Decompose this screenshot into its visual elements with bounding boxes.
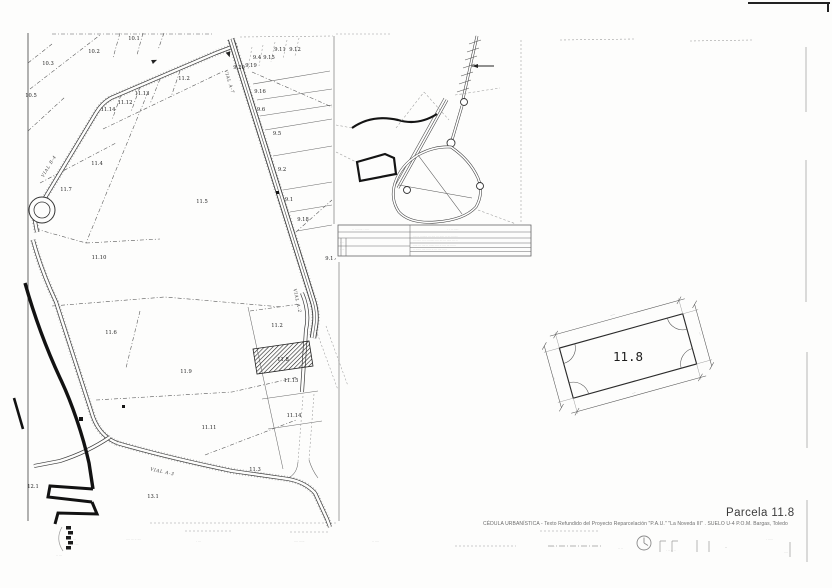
- top-right-border-corner: [748, 2, 830, 4]
- micro-text: ····: [698, 331, 703, 336]
- parcel-label: 11.14: [287, 413, 303, 419]
- road-label: VIAL A-2: [291, 288, 301, 313]
- parcel-label: 9.20: [233, 65, 245, 71]
- parcel-label: 11.10: [92, 255, 107, 261]
- parcel-label: 9.16: [254, 89, 266, 95]
- parcel-label: 11.2: [271, 323, 283, 329]
- parcel-label: 9.5: [273, 131, 281, 137]
- parcel-boundaries: [28, 33, 332, 469]
- sheet-border-marks: [540, 39, 807, 562]
- parcel-label: 9.18: [297, 217, 309, 223]
- parcel-label: 9.15: [263, 55, 275, 61]
- micro-text: ·· ···: [70, 537, 76, 541]
- sheet-title: Parcela 11.8: [726, 507, 795, 519]
- micro-text: ·····: [610, 312, 616, 317]
- parcel-label: 11.13: [135, 91, 150, 97]
- parcel-label: 9.1: [285, 197, 293, 203]
- parcel-label: 9.2: [278, 167, 286, 173]
- road-arrow: [151, 58, 158, 64]
- parcel-label: 9.6: [257, 107, 265, 113]
- parcel-label: 10.1: [128, 36, 140, 42]
- roundabout-outer: [29, 197, 55, 223]
- micro-text: ·····: [550, 544, 555, 548]
- parcel-label: 11.5: [196, 199, 208, 205]
- micro-text: ···· ······: [294, 539, 305, 543]
- scanned-sheet: 10.210.310.510.111.1411.1211.1311.211.41…: [0, 0, 832, 588]
- road-label: VIAL A-7: [222, 69, 234, 94]
- parcel-label: 11.3: [249, 467, 261, 473]
- micro-text: ·· ··: [618, 546, 623, 550]
- micro-text: ····: [631, 391, 636, 396]
- parcel-label: 11.6: [105, 330, 117, 336]
- parcel-label: 9.4: [253, 55, 262, 61]
- parcel-label: 11.12: [118, 100, 133, 106]
- map-frame: [28, 33, 339, 523]
- micro-text-layer: ·· ········ · ····· · ·· ········· ·· ··…: [56, 227, 788, 557]
- parcel-label: 11.7: [60, 187, 72, 193]
- road-label: VIAL B-4: [41, 155, 58, 179]
- micro-text: · · ·· ·····: [447, 227, 458, 231]
- micro-text: ····· ··· ···· ·· ······ ···· ·· ···· ··…: [413, 243, 456, 247]
- micro-text: ·· ······ ···· ····· ·· ··· ···· ·····: [413, 248, 447, 252]
- micro-text: · ·····: [766, 537, 773, 541]
- micro-text: ····: [552, 375, 557, 380]
- micro-text: ···· ··· ·· ····: [126, 537, 141, 541]
- micro-text: ·· ········ · ····: [352, 227, 369, 231]
- micro-text: ·· ···: [56, 553, 62, 557]
- parcel-label: 11.11: [202, 425, 217, 431]
- sheet-lineart: 10.210.310.510.111.1411.1211.1311.211.41…: [0, 0, 832, 588]
- micro-text: ··: [725, 546, 727, 550]
- micro-text: · ·· ·· · ···: [66, 542, 78, 546]
- left-parcel-map: 10.210.310.510.111.1411.1211.1311.211.41…: [14, 33, 348, 551]
- parcel-label: 11.4: [91, 161, 103, 167]
- parcel-label: 9.11: [274, 47, 286, 53]
- parcel-label: 13.1: [147, 494, 159, 500]
- parcel-label: 10.3: [42, 61, 54, 67]
- micro-text: ··· ····· ·· ·· ········ ···· ··· ··· ··…: [413, 239, 458, 243]
- road-label: VIAL A-3: [150, 468, 175, 478]
- inset-overview-map: [333, 29, 533, 258]
- micro-text: · ···: [340, 247, 345, 251]
- micro-text: ···· ·· ········ ··· ···· ··· ····· ·· ·…: [413, 234, 458, 238]
- micro-text: ····: [340, 240, 344, 244]
- parcel-label: 9.12: [289, 47, 301, 53]
- parcel-label: 11.15: [284, 378, 299, 384]
- sheet-subtitle: CÉDULA URBANÍSTICA - Texto Refundido del…: [483, 521, 803, 527]
- parcel-label: 12.1: [27, 484, 39, 490]
- micro-text: · ·· ·· ··: [666, 548, 676, 552]
- parcel-label: 11.14: [101, 107, 117, 113]
- roads: [29, 39, 348, 527]
- micro-text: ·· ····: [372, 539, 379, 543]
- junction-arrow: [226, 51, 232, 58]
- north-clock-icon: [637, 536, 651, 550]
- micro-text: · ···: [196, 539, 201, 543]
- parcel-number-labels: 10.210.310.510.111.1411.1211.1311.211.41…: [25, 36, 337, 500]
- detail-parcel-number: 11.8: [613, 349, 643, 364]
- bold-topography-lines: [14, 191, 279, 524]
- parcel-label: 11.2: [178, 76, 190, 82]
- parcel-label: 10.5: [25, 93, 37, 99]
- parcel-label: 9.19: [245, 63, 257, 69]
- parcel-detail-drawing: 11.8: [538, 293, 717, 419]
- micro-text: ····: [784, 550, 788, 554]
- parcel-label: 10.2: [88, 49, 100, 55]
- parcel-label: 11.8: [277, 357, 289, 363]
- parcel-label: 11.9: [180, 369, 192, 375]
- top-right-border-corner-vertical: [827, 2, 829, 12]
